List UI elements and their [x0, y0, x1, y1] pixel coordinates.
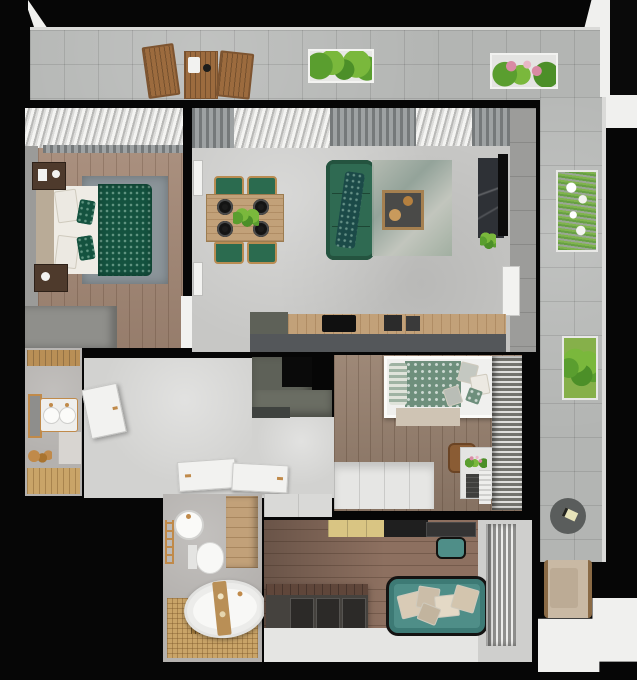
tv-screen	[498, 154, 508, 236]
balcony-planter-grass	[556, 170, 598, 252]
bathtub-caddy-wood	[212, 581, 232, 636]
bathroom-brass-ladder-rack	[165, 520, 174, 564]
living-wall-frame-top	[193, 160, 203, 196]
room-hallway	[84, 358, 252, 498]
kitchen-appliance-2	[406, 316, 420, 331]
wc-basin-2	[59, 407, 76, 424]
bedroom1-wardrobe	[25, 306, 117, 348]
lounge-desk-unit-2	[426, 522, 476, 537]
caddy-candle-1	[217, 593, 224, 600]
bedroom1-door-opening	[181, 296, 192, 348]
hallway-dark-mat	[252, 407, 290, 418]
lounge-vertical-blinds	[486, 524, 516, 646]
exterior-dark-inset	[610, 0, 637, 95]
living-curtain-right	[472, 108, 510, 146]
wc-wood-shelf	[27, 350, 80, 366]
lounge-sideboard-light	[328, 520, 384, 537]
bedroom2-wardrobe-slatted	[492, 356, 522, 510]
bathtub-tap	[237, 591, 242, 596]
room-lounge-study	[264, 520, 532, 662]
living-pergola-2	[416, 108, 472, 146]
nightstand-top-lamp	[52, 170, 60, 178]
door2-handle-gold	[277, 477, 283, 480]
living-balcony-door	[502, 266, 520, 316]
place-setting-1	[217, 199, 233, 215]
balcony-terrace-top	[30, 27, 600, 100]
lounge-desk-dark	[384, 520, 428, 537]
wc-wood-floor	[27, 468, 80, 494]
coffee-table-tray-1	[389, 209, 401, 221]
coffee-table-tray-2	[403, 196, 413, 206]
balcony-planter-green	[562, 336, 598, 400]
kitchen-counter	[288, 314, 506, 334]
bed1-duvet-green	[98, 184, 152, 276]
balcony-table-tray	[188, 57, 200, 73]
bedroom2-radiator	[479, 470, 491, 504]
lounge-wall-panel-white	[264, 494, 332, 517]
wc-tap-1	[49, 403, 53, 407]
sofa-patterned-throw	[335, 171, 365, 249]
bathroom-wood-cabinet	[226, 496, 258, 568]
caddy-candle-2	[219, 611, 226, 618]
side-table-book	[562, 507, 578, 521]
room-guest-wc	[25, 348, 82, 496]
tv-wall-plant	[480, 228, 496, 254]
wc-towel-rack-brass	[28, 448, 52, 466]
nightstand-bottom-lamp	[41, 272, 50, 281]
kitchen-appliance-1	[384, 315, 402, 331]
living-coffee-table	[382, 190, 424, 230]
dining-centerpiece-plant	[233, 205, 259, 231]
hallway-open-door	[81, 383, 127, 439]
wc-vanity	[40, 398, 78, 432]
hallway-flat-door-2	[231, 463, 288, 494]
floorplan-canvas	[0, 0, 637, 680]
kitchen-counter-front	[250, 334, 506, 352]
hallway-flat-door-1	[177, 458, 237, 492]
living-sofa-green	[326, 160, 374, 260]
lounge-desk-chair-teal	[436, 537, 466, 559]
bathroom-round-sink	[174, 510, 204, 540]
storage-drawer-3	[342, 598, 366, 632]
wc-shelving-white	[58, 432, 81, 464]
balcony-table-teapot	[203, 64, 211, 72]
living-curtain-mid	[330, 108, 416, 146]
bed2-knit-throw	[389, 363, 407, 405]
bedroom1-nightstand-top	[32, 162, 66, 190]
place-setting-3	[217, 221, 233, 237]
kitchen-cooktop	[322, 315, 356, 332]
bed1-headboard	[36, 184, 54, 276]
room-second-bedroom	[334, 355, 522, 511]
balcony-folding-chair-right	[216, 50, 255, 99]
bedroom1-nightstand-bottom	[34, 264, 68, 292]
balcony-table	[184, 51, 218, 99]
door-handle-gold	[112, 406, 118, 410]
room-master-bedroom	[25, 108, 183, 348]
bedroom2-rug	[396, 408, 460, 426]
lounge-sofa-teal	[386, 576, 488, 636]
living-wall-frame-bottom	[193, 262, 203, 296]
bedroom1-curtain-rod	[43, 145, 183, 153]
nightstand-top-book	[38, 169, 47, 181]
bedroom1-bed	[36, 184, 152, 276]
balcony-armchair	[544, 560, 592, 618]
balcony-terrace-right	[540, 97, 606, 562]
room-main-bathroom	[163, 494, 262, 662]
bedroom1-window-curtain	[25, 108, 183, 148]
bathroom-toilet	[188, 542, 222, 572]
wc-tap-2	[65, 403, 69, 407]
kitchen-tall-cabinet	[250, 312, 288, 334]
door1-handle-gold	[185, 474, 191, 477]
sink-tap-gold	[186, 514, 191, 519]
balcony-planter-flowers	[490, 53, 558, 89]
dining-chair-3	[214, 242, 244, 264]
armchair-seat	[550, 568, 578, 608]
balcony-planter-herbs	[308, 49, 374, 83]
balcony-side-table	[550, 498, 586, 534]
toilet-bowl	[196, 542, 224, 574]
bedroom2-dresser	[334, 462, 434, 509]
dining-table	[206, 194, 284, 242]
storage-drawer-2	[316, 598, 340, 632]
storage-wood-top-band	[266, 584, 368, 595]
hallway-east-wing	[252, 417, 334, 498]
balcony-folding-chair-left	[142, 43, 181, 99]
desk-flowers	[465, 452, 487, 470]
dining-chair-4	[247, 242, 277, 264]
island-notch	[282, 357, 312, 387]
wc-basin-1	[43, 407, 60, 424]
living-pergola-1	[234, 108, 330, 148]
storage-drawer-1	[290, 598, 314, 632]
living-curtain-left	[192, 108, 234, 148]
